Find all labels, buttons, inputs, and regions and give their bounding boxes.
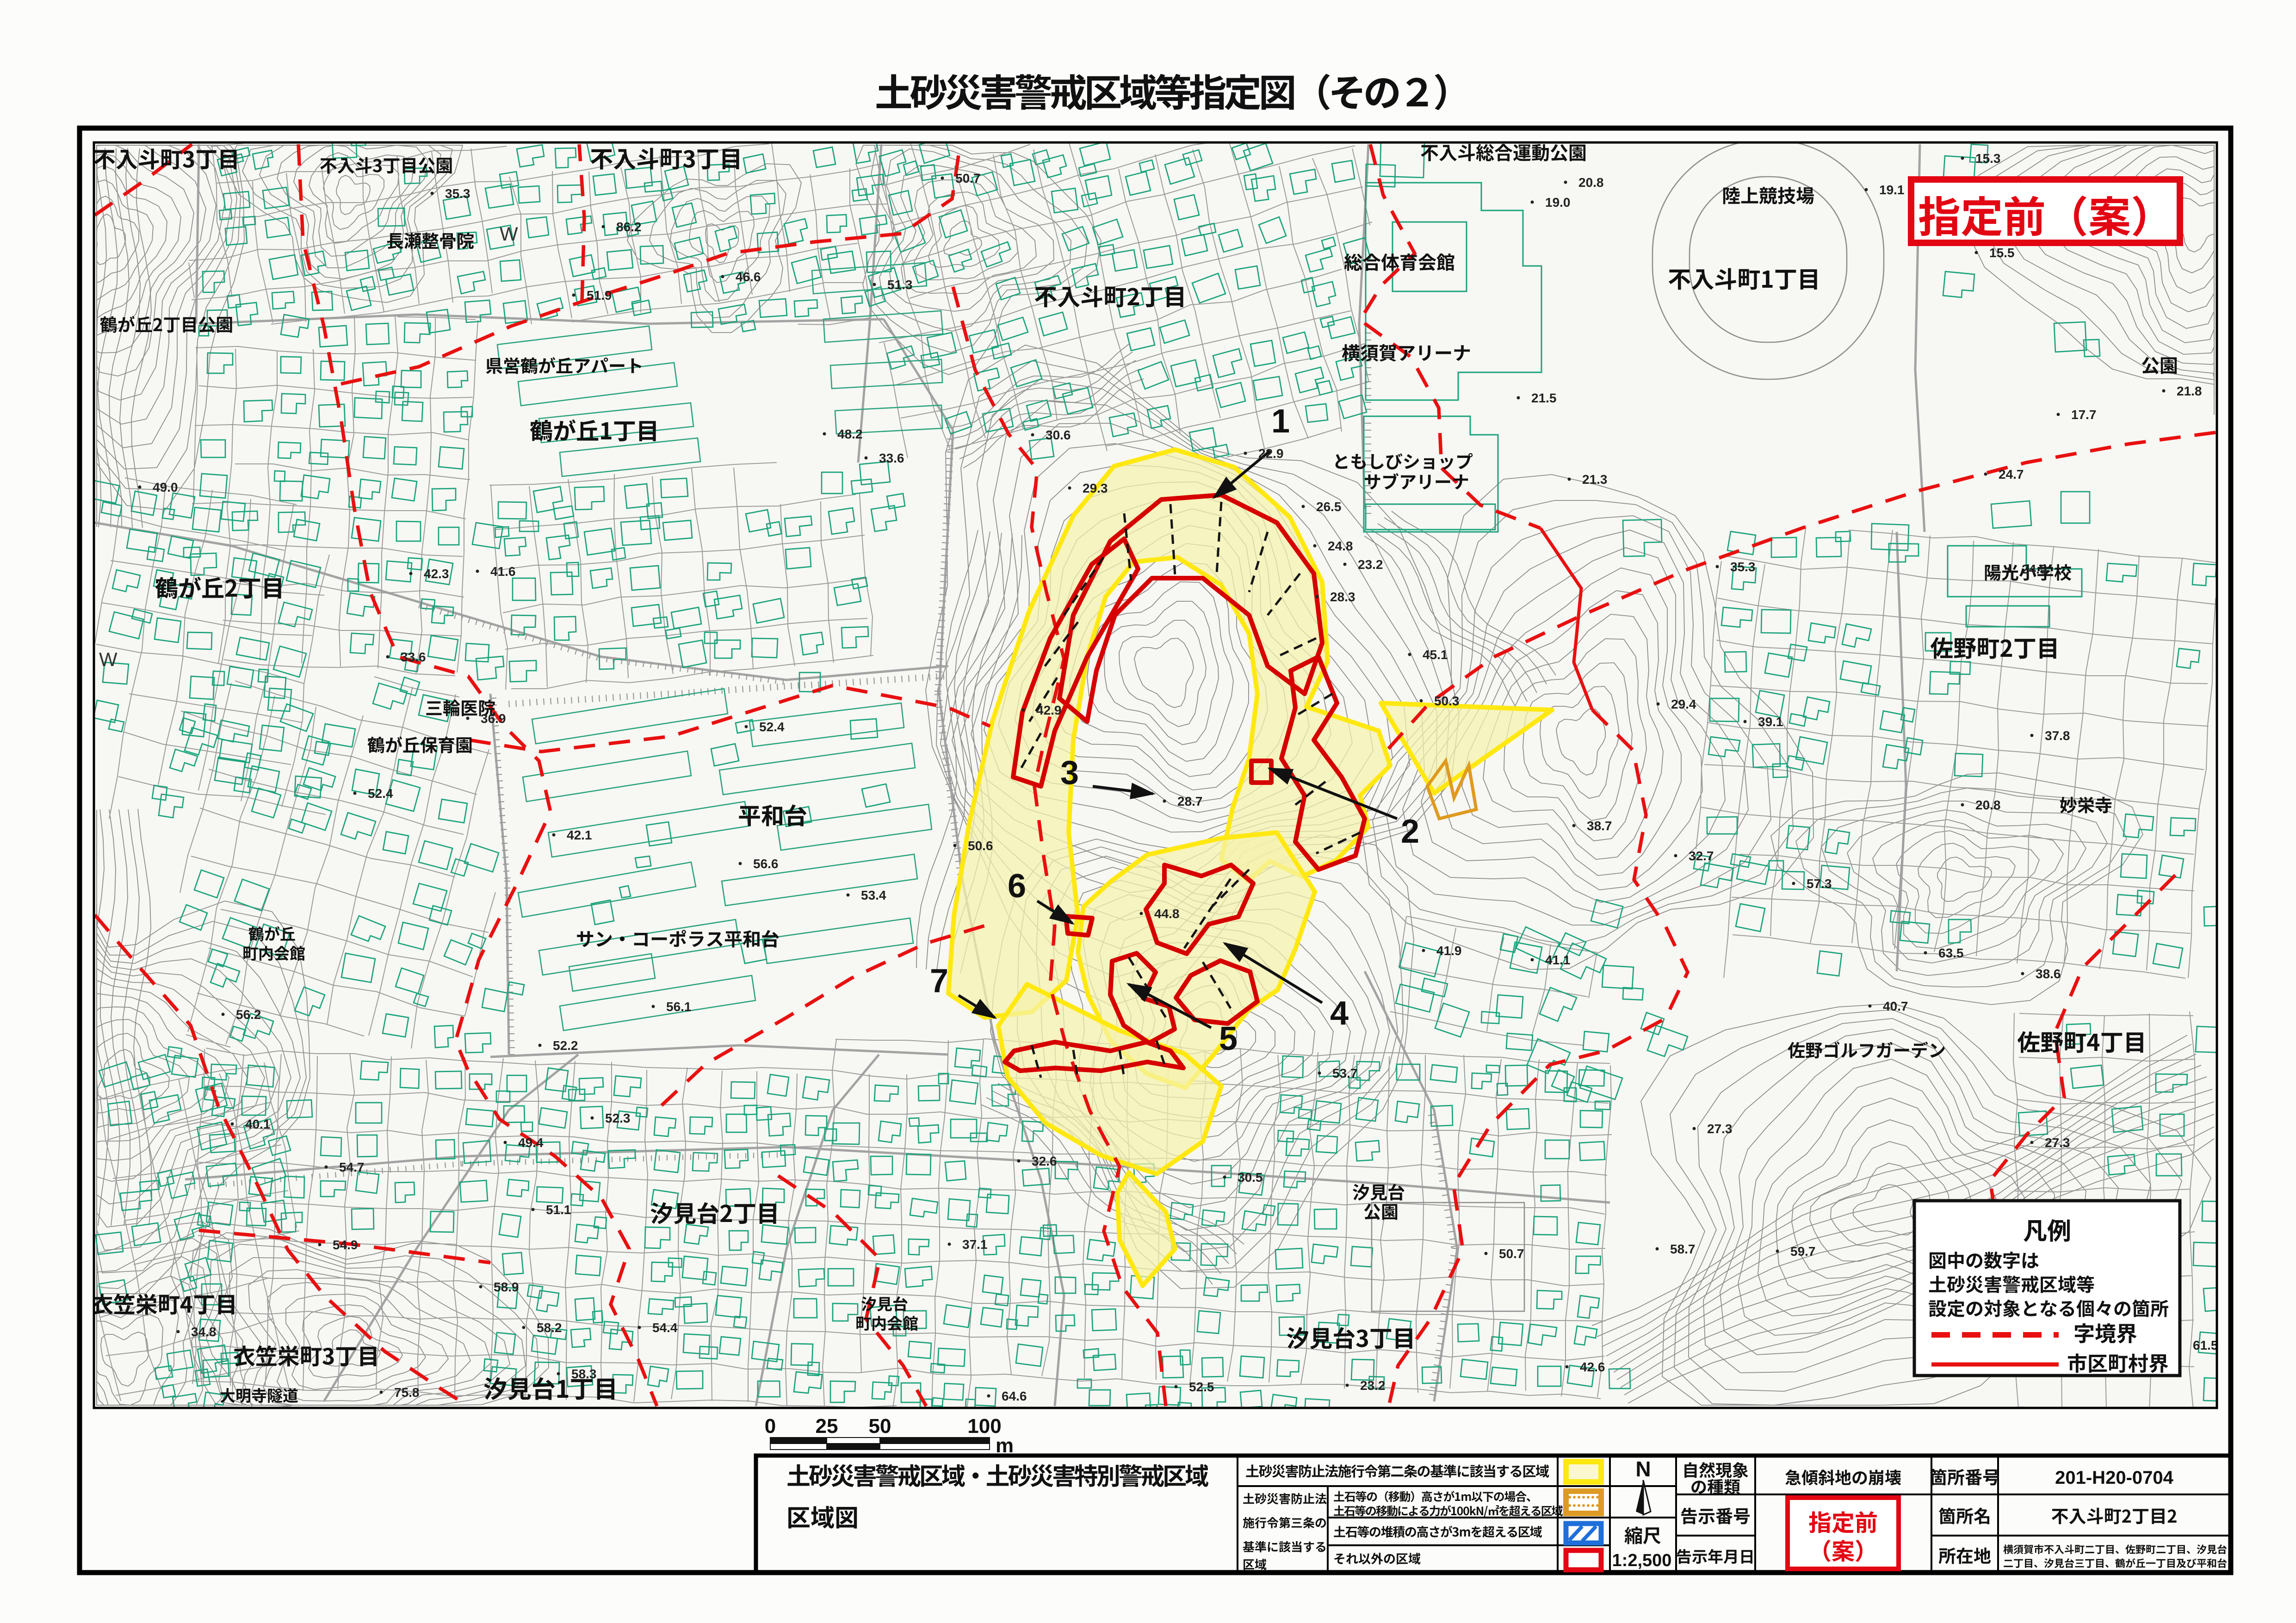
svg-text:51.1: 51.1 (546, 1203, 571, 1217)
svg-text:57.3: 57.3 (1807, 876, 1832, 891)
svg-text:54.7: 54.7 (339, 1160, 365, 1174)
svg-text:75.8: 75.8 (394, 1385, 420, 1400)
svg-text:1:2,500: 1:2,500 (1612, 1551, 1672, 1570)
svg-text:38.7: 38.7 (1587, 819, 1612, 833)
svg-text:52.4: 52.4 (368, 786, 393, 801)
svg-text:19.0: 19.0 (1545, 195, 1571, 210)
svg-text:20.8: 20.8 (1975, 798, 2001, 812)
svg-text:44.8: 44.8 (1154, 907, 1180, 921)
svg-text:53.4: 53.4 (861, 888, 886, 902)
svg-text:50.3: 50.3 (1434, 694, 1460, 708)
svg-text:58.9: 58.9 (494, 1280, 519, 1294)
svg-text:50.7: 50.7 (1499, 1247, 1524, 1261)
svg-text:17.7: 17.7 (2071, 407, 2097, 422)
svg-text:86.2: 86.2 (616, 220, 642, 234)
svg-text:56.2: 56.2 (236, 1007, 261, 1022)
svg-text:23.2: 23.2 (1360, 1378, 1386, 1393)
svg-text:50: 50 (869, 1415, 891, 1438)
svg-text:26.5: 26.5 (1316, 500, 1342, 514)
svg-text:49.4: 49.4 (518, 1135, 544, 1150)
svg-text:21.3: 21.3 (1582, 472, 1608, 487)
svg-text:5: 5 (1219, 1020, 1238, 1057)
svg-text:21.8: 21.8 (2177, 384, 2202, 398)
svg-text:2: 2 (1401, 813, 1419, 850)
svg-text:54.4: 54.4 (652, 1321, 678, 1335)
svg-text:33.6: 33.6 (879, 451, 904, 465)
svg-text:4: 4 (1330, 995, 1349, 1032)
svg-text:48.2: 48.2 (837, 427, 863, 441)
svg-text:22.9: 22.9 (1258, 446, 1284, 461)
svg-text:42.3: 42.3 (424, 567, 449, 581)
svg-text:25: 25 (816, 1415, 838, 1438)
svg-text:58.2: 58.2 (537, 1321, 562, 1335)
svg-text:50.7: 50.7 (955, 171, 981, 185)
svg-text:1: 1 (1271, 403, 1290, 440)
svg-text:52.2: 52.2 (553, 1038, 578, 1053)
svg-text:W: W (99, 648, 118, 670)
svg-text:61.5: 61.5 (2193, 1338, 2218, 1352)
svg-text:52.3: 52.3 (605, 1111, 631, 1125)
svg-text:59.7: 59.7 (1790, 1244, 1816, 1259)
svg-text:39.1: 39.1 (1758, 715, 1783, 729)
svg-text:52.5: 52.5 (1189, 1380, 1214, 1394)
svg-text:41.6: 41.6 (490, 564, 516, 579)
svg-text:29.3: 29.3 (1083, 481, 1108, 495)
svg-text:27.3: 27.3 (1707, 1122, 1733, 1136)
svg-text:50.6: 50.6 (968, 839, 993, 853)
svg-text:40.1: 40.1 (245, 1117, 271, 1131)
svg-text:6: 6 (1008, 868, 1026, 905)
svg-text:58.7: 58.7 (1670, 1242, 1696, 1256)
svg-text:42.1: 42.1 (567, 828, 592, 842)
svg-text:56.1: 56.1 (666, 1000, 692, 1014)
svg-text:33.6: 33.6 (401, 650, 426, 664)
svg-text:45.1: 45.1 (1423, 648, 1448, 662)
svg-text:27.3: 27.3 (2045, 1135, 2070, 1150)
svg-text:20.8: 20.8 (1578, 175, 1604, 190)
svg-text:64.6: 64.6 (1002, 1389, 1027, 1403)
svg-text:40.7: 40.7 (1883, 999, 1908, 1013)
svg-text:0: 0 (765, 1415, 776, 1438)
svg-text:52.4: 52.4 (759, 720, 785, 734)
svg-text:19.1: 19.1 (1879, 183, 1905, 197)
svg-text:24.7: 24.7 (1999, 467, 2024, 481)
svg-text:56.6: 56.6 (753, 857, 779, 871)
svg-text:28.3: 28.3 (1330, 590, 1355, 604)
svg-text:32.7: 32.7 (1689, 849, 1714, 863)
svg-text:34.8: 34.8 (191, 1325, 217, 1339)
svg-text:24.5: 24.5 (2022, 562, 2047, 576)
svg-text:29.4: 29.4 (1671, 697, 1696, 711)
svg-text:42.6: 42.6 (1580, 1360, 1605, 1374)
svg-text:N: N (1635, 1457, 1651, 1481)
svg-text:15.3: 15.3 (1975, 151, 2001, 166)
svg-text:3: 3 (1060, 754, 1079, 791)
svg-text:36.9: 36.9 (481, 711, 506, 726)
svg-text:35.3: 35.3 (1730, 560, 1756, 574)
svg-text:41.1: 41.1 (1545, 953, 1571, 967)
svg-text:51.9: 51.9 (587, 288, 612, 302)
svg-text:46.6: 46.6 (736, 270, 761, 284)
svg-text:21.5: 21.5 (1531, 391, 1557, 405)
svg-text:30.6: 30.6 (1046, 428, 1071, 442)
svg-text:15.5: 15.5 (1989, 246, 2015, 260)
svg-text:51.3: 51.3 (887, 278, 913, 292)
svg-text:24.8: 24.8 (1328, 539, 1353, 553)
svg-text:41.9: 41.9 (1436, 944, 1462, 958)
svg-text:63.5: 63.5 (1938, 946, 1964, 960)
svg-text:30.5: 30.5 (1238, 1170, 1263, 1185)
svg-text:7: 7 (930, 963, 948, 1000)
svg-text:37.1: 37.1 (962, 1237, 988, 1252)
svg-text:58.3: 58.3 (571, 1367, 597, 1381)
svg-text:W: W (500, 223, 518, 245)
svg-text:23.2: 23.2 (1358, 557, 1383, 572)
svg-text:32.6: 32.6 (1032, 1154, 1057, 1168)
svg-text:54.9: 54.9 (333, 1238, 358, 1252)
svg-text:28.7: 28.7 (1177, 794, 1203, 808)
svg-text:37.8: 37.8 (2045, 728, 2070, 743)
svg-text:201-H20-0704: 201-H20-0704 (2055, 1468, 2173, 1488)
svg-text:35.3: 35.3 (445, 186, 470, 201)
svg-text:42.9: 42.9 (1036, 703, 1062, 717)
svg-text:53.7: 53.7 (1332, 1066, 1358, 1080)
svg-text:49.0: 49.0 (153, 480, 178, 494)
svg-text:38.6: 38.6 (2036, 967, 2061, 981)
